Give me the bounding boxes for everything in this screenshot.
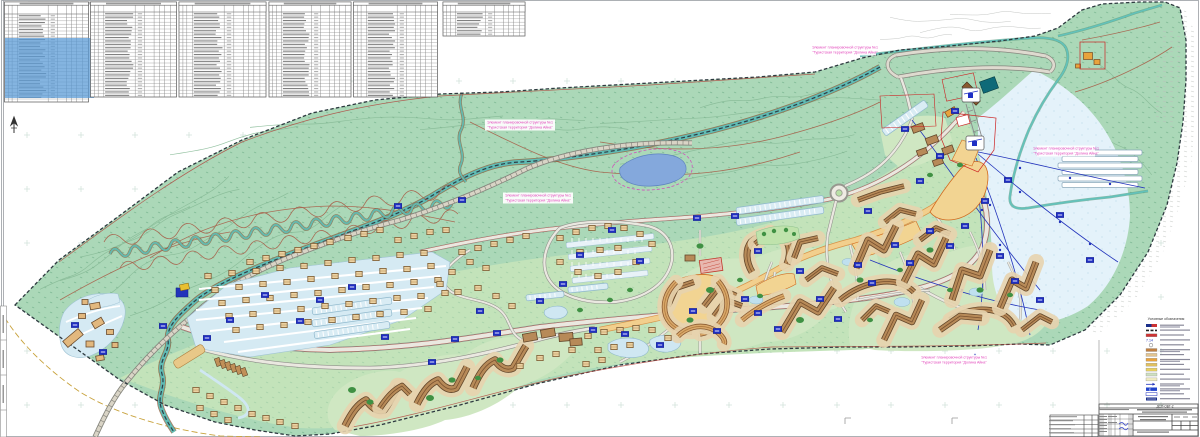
svg-text:Элемент планировочной структур: Элемент планировочной структуры №1 xyxy=(1033,147,1099,151)
svg-text:ДСП-ОВГ-2: ДСП-ОВГ-2 xyxy=(1157,404,1174,408)
svg-text:"Туристская территория "Долина: "Туристская территория "Долина Айна" xyxy=(487,126,553,130)
svg-text:Элемент планировочной структур: Элемент планировочной структуры №1 xyxy=(812,46,878,50)
svg-text:"Туристская территория "Долина: "Туристская территория "Долина Айна" xyxy=(812,51,878,55)
svg-text:7.14: 7.14 xyxy=(1146,339,1153,343)
svg-text:"Туристская территория "Долина: "Туристская территория "Долина Айна" xyxy=(505,199,571,203)
svg-text:Условные обозначения: Условные обозначения xyxy=(1148,317,1185,321)
svg-text:Элемент планировочной структур: Элемент планировочной структуры №1 xyxy=(921,356,987,360)
svg-text:E: E xyxy=(1149,387,1151,391)
svg-text:"Туристская территория "Долина: "Туристская территория "Долина Айна" xyxy=(1033,152,1099,156)
svg-text:Элемент планировочной структур: Элемент планировочной структуры №1 xyxy=(487,121,553,125)
svg-text:"Туристская территория "Долина: "Туристская территория "Долина Айна" xyxy=(921,361,987,365)
svg-text:Элемент планировочной структур: Элемент планировочной структуры №1 xyxy=(505,194,571,198)
